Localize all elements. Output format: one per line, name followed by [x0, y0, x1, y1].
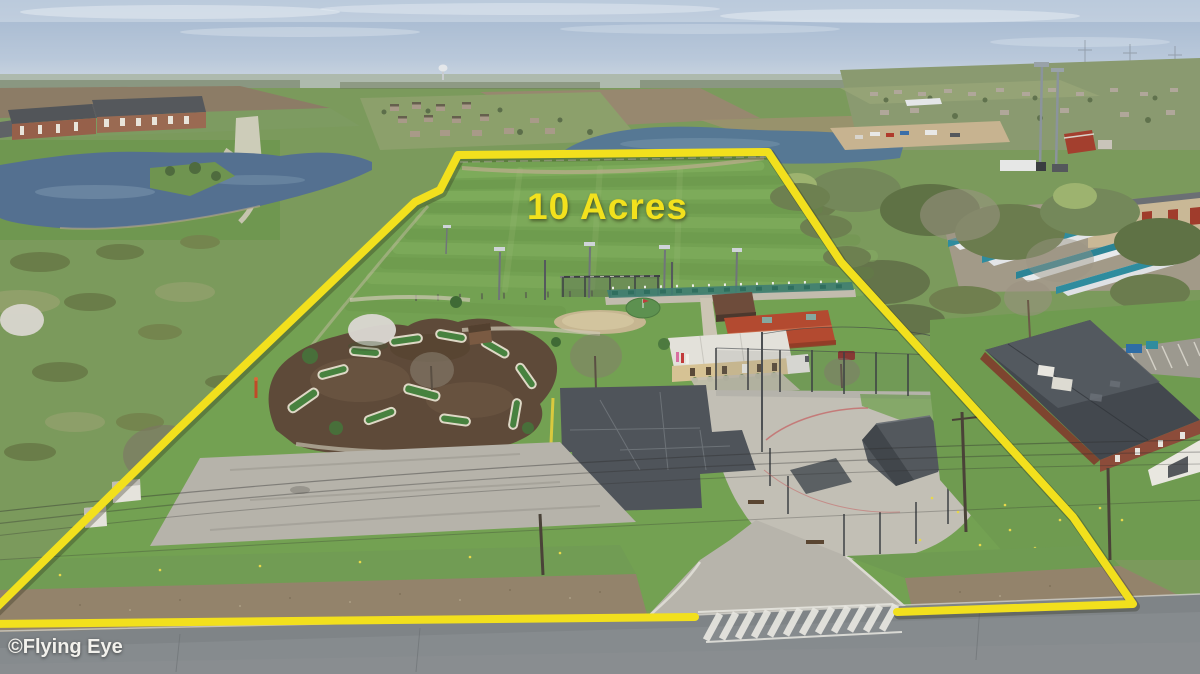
acreage-label: 10 Acres: [527, 186, 688, 228]
utility-pole: [1108, 468, 1110, 560]
bare-tree: [920, 189, 1000, 241]
cloud: [990, 37, 1170, 47]
blue-dumpster: [1126, 344, 1142, 353]
cloud: [560, 24, 840, 34]
watermark: ©Flying Eye: [8, 636, 123, 659]
marker-pole: [254, 377, 258, 398]
aerial-photo: [0, 0, 1200, 674]
bench: [748, 500, 764, 504]
cloud: [720, 9, 1080, 23]
bench: [806, 540, 824, 544]
cloud: [320, 3, 720, 15]
teal-dumpster: [1146, 341, 1158, 349]
cloud: [20, 5, 340, 19]
cloud: [180, 27, 420, 37]
red-barn: [1064, 130, 1096, 154]
flowering-tree: [0, 304, 44, 336]
